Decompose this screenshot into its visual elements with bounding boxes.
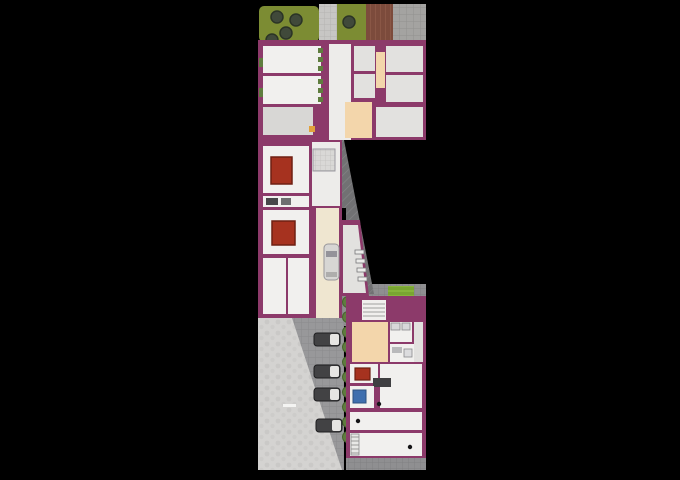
rug <box>272 221 295 245</box>
kitchen-counter <box>373 378 391 387</box>
room <box>288 258 309 314</box>
room <box>386 46 423 72</box>
entry-steps <box>362 300 386 320</box>
room <box>376 107 423 137</box>
bike-rack <box>357 268 366 272</box>
site-plan-svg <box>0 0 680 480</box>
tree <box>290 14 302 26</box>
planter <box>318 97 323 102</box>
planter <box>318 66 323 71</box>
column <box>356 419 360 423</box>
fixture <box>391 323 400 330</box>
tree <box>280 27 292 39</box>
car-front <box>330 389 339 400</box>
car-front <box>330 334 339 345</box>
column <box>377 402 381 406</box>
fixture <box>266 198 278 205</box>
planter <box>318 79 323 84</box>
planter <box>259 88 263 97</box>
car-front <box>332 420 341 431</box>
stair-strip <box>376 52 385 88</box>
paving-south <box>346 458 426 470</box>
column <box>408 445 412 449</box>
room <box>350 433 422 456</box>
room <box>263 76 321 104</box>
site-plan-canvas <box>0 0 680 480</box>
tree <box>271 11 283 23</box>
room <box>263 258 286 314</box>
room <box>354 74 375 98</box>
bike-rack <box>356 259 365 263</box>
paving-top-right <box>393 4 426 41</box>
fixture <box>281 198 291 205</box>
planter <box>318 57 323 62</box>
walkway-top <box>319 4 337 42</box>
tree <box>343 16 355 28</box>
paint-mark <box>283 404 296 407</box>
bike-rack <box>358 277 367 281</box>
hall-peach <box>352 322 388 362</box>
planter <box>318 48 323 53</box>
fixture <box>404 349 412 357</box>
orange-fixture <box>309 126 315 132</box>
room <box>354 46 375 71</box>
wood-deck <box>366 4 393 41</box>
stairs <box>351 434 359 455</box>
stairwell <box>345 102 372 138</box>
rug <box>355 368 370 380</box>
room <box>263 46 321 73</box>
tiled-bath <box>313 149 335 171</box>
room <box>263 107 313 135</box>
fixture <box>392 347 402 353</box>
rug <box>271 157 292 184</box>
room <box>386 75 423 102</box>
room <box>414 322 423 362</box>
car-garage-windshield <box>326 251 337 257</box>
room <box>350 412 422 430</box>
car-front <box>330 366 339 377</box>
blue-fixture <box>353 390 366 403</box>
planter <box>318 88 323 93</box>
planter <box>259 58 263 67</box>
bike-rack <box>355 250 364 254</box>
fixture <box>402 323 410 330</box>
car-garage-rear <box>326 272 337 277</box>
